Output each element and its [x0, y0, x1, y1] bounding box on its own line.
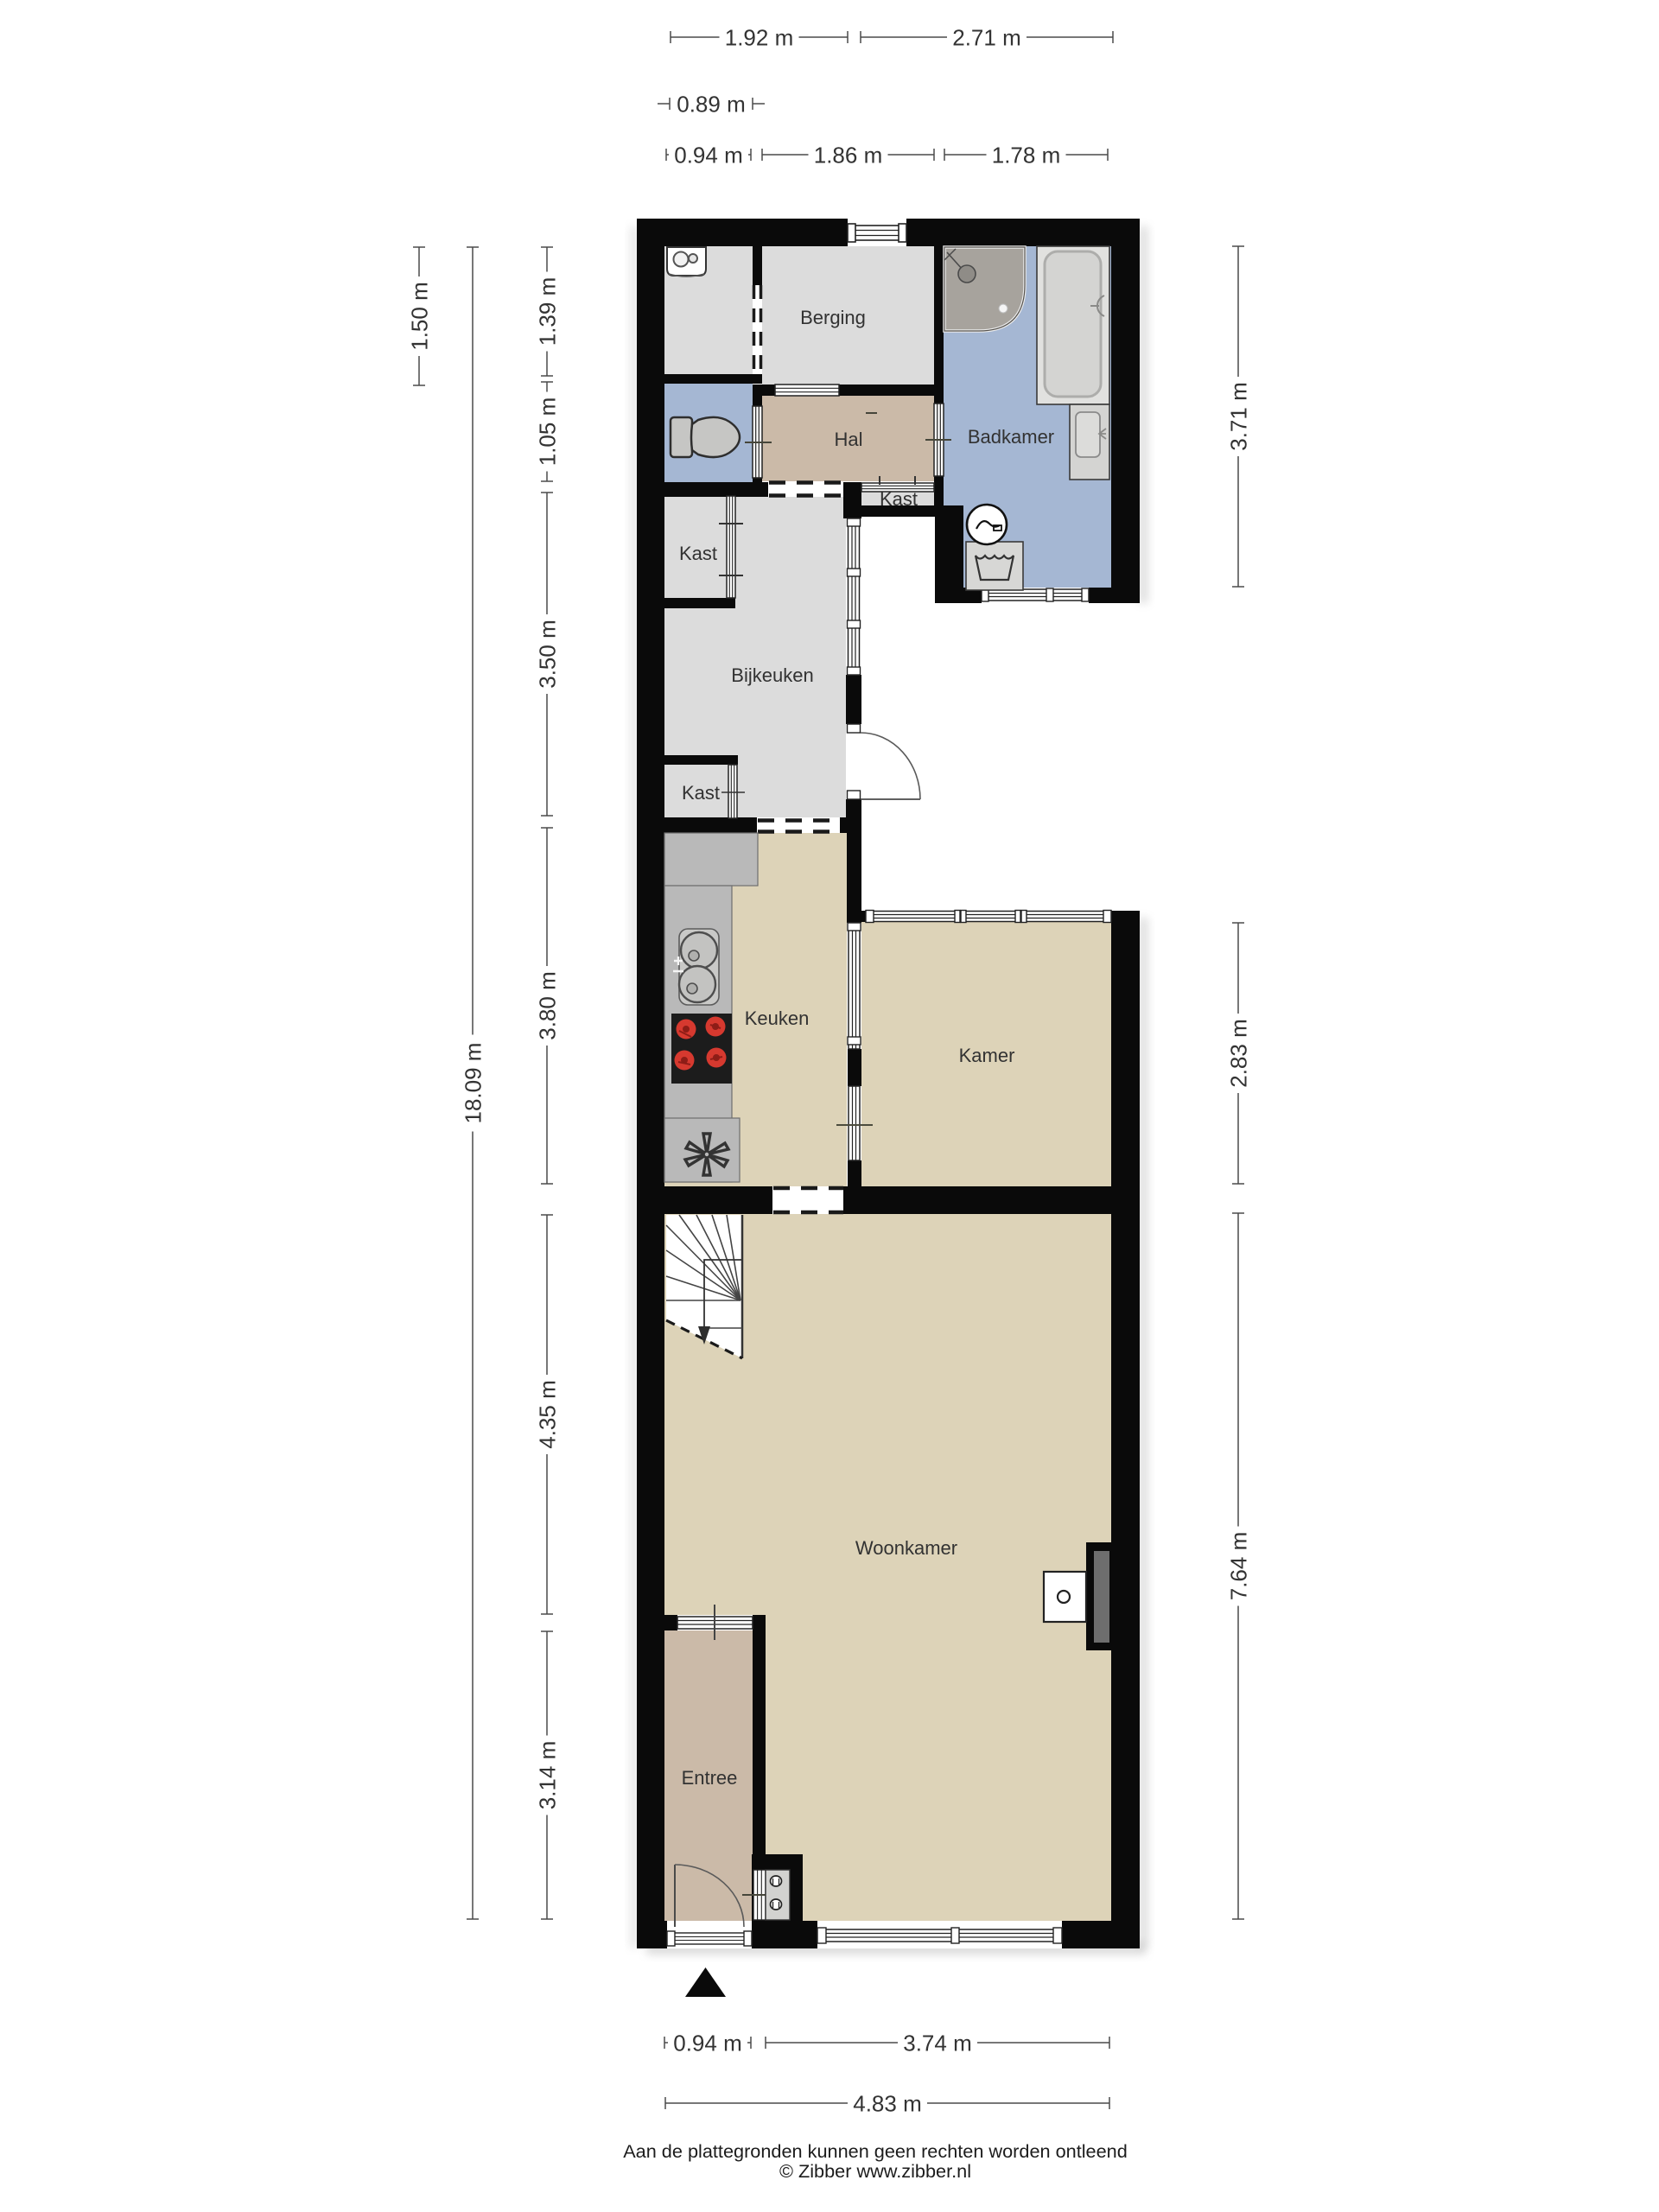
svg-text:3.74 m: 3.74 m	[903, 2031, 972, 2056]
svg-text:3.14 m: 3.14 m	[535, 1741, 561, 1810]
svg-text:© Zibber www.zibber.nl: © Zibber www.zibber.nl	[779, 2160, 971, 2182]
svg-text:3.80 m: 3.80 m	[535, 971, 561, 1040]
svg-text:Aan de plattegronden kunnen ge: Aan de plattegronden kunnen geen rechten…	[623, 2140, 1128, 2162]
svg-text:7.64 m: 7.64 m	[1226, 1532, 1252, 1601]
svg-text:3.50 m: 3.50 m	[535, 620, 561, 689]
svg-text:Woonkamer: Woonkamer	[855, 1537, 957, 1559]
svg-text:4.35 m: 4.35 m	[535, 1380, 561, 1449]
svg-text:3.71 m: 3.71 m	[1226, 382, 1252, 451]
svg-text:1.05 m: 1.05 m	[535, 397, 561, 467]
svg-text:Badkamer: Badkamer	[968, 426, 1054, 448]
svg-text:0.89 m: 0.89 m	[677, 92, 746, 118]
svg-text:Kast: Kast	[880, 488, 918, 510]
svg-text:1.86 m: 1.86 m	[814, 143, 883, 168]
svg-text:0.94 m: 0.94 m	[673, 2031, 742, 2056]
svg-text:Hal: Hal	[834, 429, 862, 450]
svg-text:1.92 m: 1.92 m	[725, 25, 794, 51]
svg-text:Keuken: Keuken	[745, 1007, 810, 1029]
svg-text:Bijkeuken: Bijkeuken	[731, 664, 813, 686]
svg-text:Entree: Entree	[682, 1767, 738, 1789]
svg-text:1.39 m: 1.39 m	[535, 277, 561, 346]
svg-text:2.71 m: 2.71 m	[952, 25, 1021, 51]
svg-text:4.83 m: 4.83 m	[853, 2091, 922, 2117]
svg-text:1.50 m: 1.50 m	[407, 282, 433, 351]
svg-text:Berging: Berging	[800, 307, 866, 328]
svg-text:Kast: Kast	[679, 543, 717, 564]
svg-text:Kamer: Kamer	[959, 1045, 1015, 1066]
svg-text:18.09 m: 18.09 m	[461, 1043, 486, 1124]
svg-text:Kast: Kast	[682, 782, 720, 804]
svg-text:0.94 m: 0.94 m	[674, 143, 743, 168]
svg-text:2.83 m: 2.83 m	[1226, 1019, 1252, 1088]
svg-text:1.78 m: 1.78 m	[992, 143, 1061, 168]
